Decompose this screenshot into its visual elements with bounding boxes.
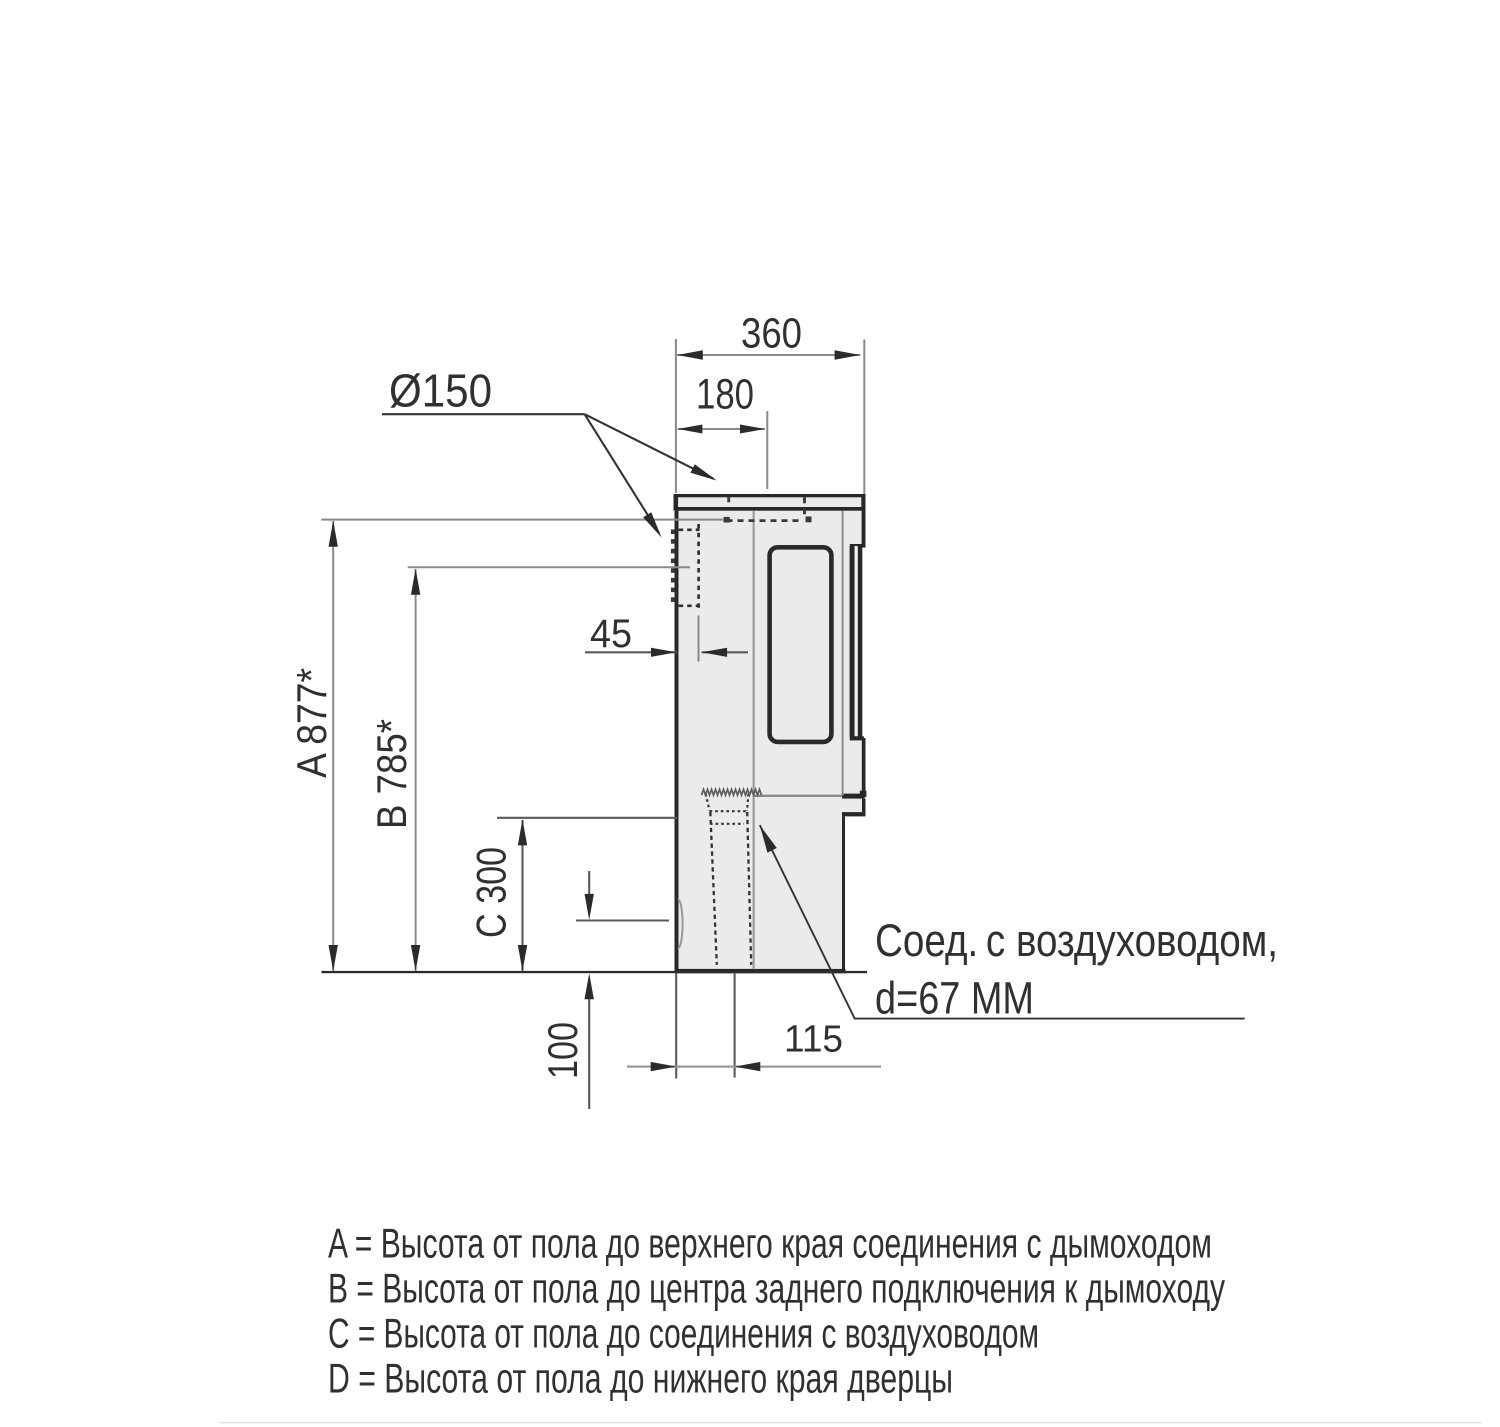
svg-text:180: 180 [696, 371, 754, 419]
svg-text:100: 100 [539, 1022, 586, 1079]
svg-text:A 877*: A 877* [288, 668, 335, 778]
svg-text:C 300: C 300 [468, 847, 515, 938]
svg-text:B = Высота от пола до центра з: B = Высота от пола до центра заднего под… [328, 1265, 1225, 1312]
svg-text:360: 360 [741, 310, 802, 358]
svg-text:B 785*: B 785* [368, 719, 415, 829]
svg-text:D = Высота от пола до нижнего: D = Высота от пола до нижнего края дверц… [328, 1355, 953, 1402]
svg-text:d=67 ММ: d=67 ММ [875, 973, 1034, 1024]
svg-text:A = Высота от пола до верхнего: A = Высота от пола до верхнего края соед… [328, 1220, 1212, 1267]
svg-text:115: 115 [784, 1019, 843, 1061]
svg-text:Соед. с воздуховодом,: Соед. с воздуховодом, [875, 915, 1278, 966]
svg-text:C = Высота от пола до соединен: C = Высота от пола до соединения с возду… [328, 1310, 1039, 1357]
svg-text:Ø150: Ø150 [389, 365, 492, 417]
svg-text:45: 45 [590, 612, 632, 656]
